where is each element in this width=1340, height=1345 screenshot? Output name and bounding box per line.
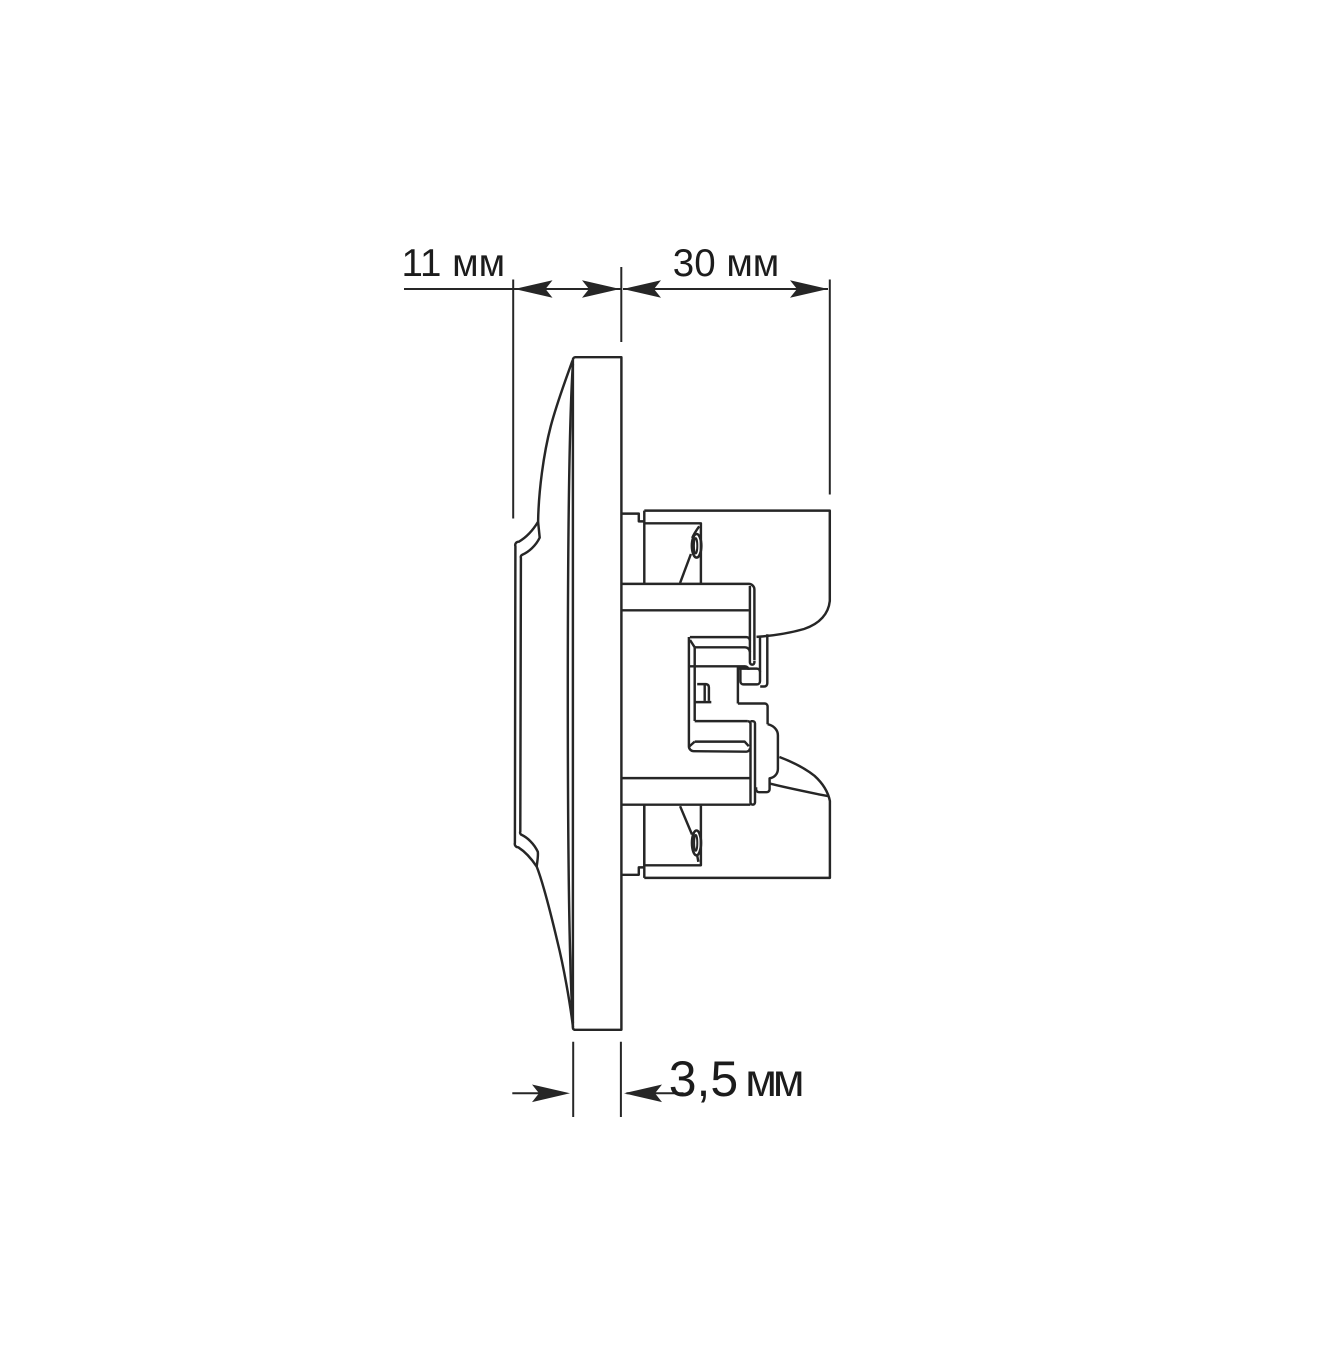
svg-text:3,5: 3,5 xyxy=(669,1051,739,1107)
svg-text:мм: мм xyxy=(745,1054,802,1106)
svg-text:11 мм: 11 мм xyxy=(402,242,506,285)
svg-text:30 мм: 30 мм xyxy=(673,242,779,285)
